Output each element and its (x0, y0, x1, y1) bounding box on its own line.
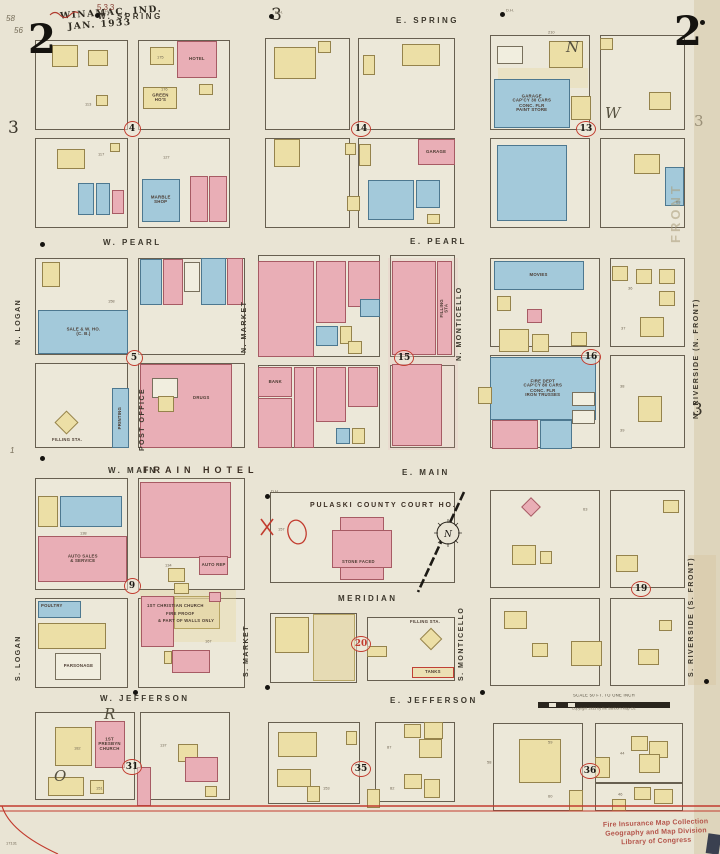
building (78, 183, 94, 215)
building (638, 649, 659, 665)
annotation-3: 3 (694, 114, 704, 129)
lot-number-d-h: D.H. (101, 10, 109, 14)
building (42, 262, 60, 287)
building (307, 786, 320, 802)
building (140, 364, 232, 448)
building-sale-w-ho: SALE & W. HO.(C. B.) (38, 310, 128, 354)
building (638, 396, 662, 422)
building (88, 50, 108, 66)
building (346, 731, 357, 745)
building-label: HOTEL (189, 57, 205, 62)
building (164, 651, 172, 664)
building (38, 623, 106, 649)
lot-number-151: 151 (96, 787, 103, 791)
building-auto-rep: AUTO REP (199, 556, 228, 575)
block-outline (610, 598, 685, 686)
hydrant-dot (40, 242, 45, 247)
building (96, 183, 110, 215)
lot-number-113: 113 (85, 103, 91, 107)
annotation-58: 58 (6, 14, 15, 23)
street-label-s-logan: S. LOGAN (15, 635, 22, 681)
building (57, 149, 85, 169)
building (316, 326, 338, 346)
building (532, 334, 549, 352)
building (612, 799, 626, 811)
building (163, 259, 183, 305)
lot-number-63: 63 (583, 508, 587, 512)
lot-number-44: 44 (620, 752, 624, 756)
building (316, 367, 346, 422)
building (360, 299, 380, 317)
hydrant-dot (480, 690, 485, 695)
building (404, 774, 422, 789)
street-label-s-monticello: S. MONTICELLO (458, 607, 465, 681)
lot-number-167: 167 (205, 640, 212, 644)
building (572, 410, 595, 424)
building-auto-sales: AUTO SALES& SERVICE (38, 536, 127, 582)
street-label-s-riverside-s-front: S. RIVERSIDE (S. FRONT) (688, 557, 695, 677)
lot-number-117: 117 (98, 153, 104, 157)
building-label: GARAGECAP'CY 30 CARSCONC. FLRPAINT STORE (513, 94, 552, 112)
building-label: PRINTING (118, 407, 123, 429)
building (190, 176, 208, 222)
building (639, 754, 660, 773)
building (205, 786, 217, 797)
building (654, 789, 673, 804)
building (294, 367, 314, 448)
building (174, 583, 189, 594)
lot-number-175: 175 (157, 56, 164, 60)
annotation-1st-christian-church: 1ST CHRISTIAN CHURCH (147, 604, 204, 608)
building (152, 378, 178, 398)
lot-number-37: 37 (621, 327, 625, 331)
lot-number-36: 36 (628, 287, 632, 291)
building (427, 214, 440, 224)
lot-number-60: 60 (548, 795, 552, 799)
street-label-w-jefferson: W. JEFFERSON (100, 694, 190, 703)
scale-label: SCALE 50 FT. TO ONE INCH (559, 694, 649, 698)
lot-number-157: 157 (278, 528, 285, 532)
building (185, 757, 218, 782)
building (258, 398, 292, 448)
building (402, 44, 440, 66)
lot-number-134: 134 (165, 564, 172, 568)
building (168, 568, 185, 582)
building-label: FILLINGSTA (440, 299, 449, 317)
building (600, 38, 613, 50)
building (499, 329, 529, 352)
building-label: GARAGE (426, 150, 446, 155)
building (367, 646, 387, 657)
building (392, 364, 442, 446)
ink-blotch (706, 833, 720, 854)
building (112, 190, 124, 214)
building (140, 259, 162, 305)
annotation-n: N (566, 38, 579, 56)
annotation-56: 56 (14, 26, 23, 35)
building (275, 617, 309, 653)
street-label-w-pearl: W. PEARL (103, 238, 162, 247)
building-movies: MOVIES (494, 261, 584, 290)
block-number-5: 5 (126, 350, 143, 366)
lot-number-182: 182 (74, 747, 81, 751)
building (201, 258, 226, 305)
building (497, 145, 567, 221)
lot-number-d-h: D.H. (271, 490, 279, 494)
building (348, 341, 362, 354)
building (199, 84, 213, 95)
block-number-31: 31 (122, 759, 142, 775)
building (60, 496, 122, 527)
building (636, 269, 652, 284)
building (209, 176, 227, 222)
building (478, 387, 492, 404)
building-label: BANK (268, 380, 281, 385)
building (368, 180, 414, 220)
building (258, 261, 314, 357)
annotation-filling-sta: FILLING STA. (52, 438, 82, 442)
building-printing: PRINTING (112, 388, 129, 448)
railroad-curve (2, 806, 58, 854)
building-bank: BANK (258, 367, 292, 397)
building (634, 787, 651, 800)
building (649, 92, 671, 110)
hydrant-dot (40, 456, 45, 461)
building (278, 732, 317, 757)
annotation-frain-hotel: FRAIN HOTEL (143, 465, 259, 475)
building (416, 180, 440, 208)
annotation-r: R (104, 705, 115, 723)
annotation-fire-proof: FIRE PROOF (166, 612, 194, 616)
building (209, 592, 221, 602)
annotation-stone-faced: STONE FACED (342, 560, 375, 564)
block-number-36: 36 (580, 763, 600, 779)
block-number-19: 19 (631, 581, 651, 597)
building (640, 317, 664, 337)
street-label-e-main: E. MAIN (402, 468, 450, 477)
street-label-s-market: S. MARKET (243, 625, 250, 677)
building-label: AUTO REP (202, 563, 226, 568)
block-number-13: 13 (576, 121, 596, 137)
building (424, 779, 440, 798)
building (352, 428, 365, 444)
street-label-n-logan: N. LOGAN (15, 299, 22, 345)
building-filling: FILLINGSTA (437, 261, 452, 355)
annotation-front: FRONT (668, 183, 683, 243)
lot-number-39: 39 (620, 429, 624, 433)
building (659, 620, 672, 631)
street-label-e-spring: E. SPRING (396, 16, 459, 25)
building (313, 614, 355, 681)
building (172, 650, 210, 673)
lot-number-138: 138 (80, 532, 87, 536)
lot-number-82: 82 (390, 787, 394, 791)
building-label: GREENHO'S (152, 93, 168, 102)
sanborn-map-sheet: HOTELGREENHO'SMARBLESHOPGARAGEGARAGECAP'… (0, 0, 720, 854)
building (569, 790, 583, 811)
building-label: SALE & W. HO.(C. B.) (66, 327, 100, 336)
block-number-35: 35 (351, 761, 371, 777)
block-outline (490, 490, 600, 588)
block-number-9: 9 (124, 578, 141, 594)
building (519, 739, 561, 783)
lot-number-58: 58 (487, 761, 491, 765)
hydrant-dot (269, 14, 274, 19)
scale-segment (538, 702, 548, 708)
hydrant-dot (133, 690, 138, 695)
building (345, 143, 356, 155)
building-label: FIRE DEPTCAP'CY 80 CARSCONC. FLRIRON TRU… (524, 379, 563, 397)
building (512, 545, 536, 565)
building (527, 309, 542, 323)
building-label: TANKS (425, 670, 441, 675)
scale-copyright: Copyright 1933 by the Sanborn Map Co. (564, 707, 643, 711)
lot-number-158: 158 (108, 300, 115, 304)
building (497, 46, 523, 64)
building (419, 739, 442, 758)
lot-number-87: 87 (387, 746, 391, 750)
annotation-1: 1 (10, 446, 14, 455)
building (274, 47, 316, 79)
building (140, 482, 231, 558)
block-number-15: 15 (394, 350, 414, 366)
block-number-4: 4 (124, 121, 141, 137)
building-garage: GARAGECAP'CY 30 CARSCONC. FLRPAINT STORE (494, 79, 570, 128)
building (571, 332, 587, 346)
building (367, 789, 380, 808)
hydrant-dot (265, 685, 270, 690)
building (659, 291, 675, 306)
block-number-20: 20 (351, 636, 371, 652)
scale-bar: SCALE 50 FT. TO ONE INCH Copyright 1933 … (538, 694, 670, 713)
hydrant-dot (704, 679, 709, 684)
building (631, 736, 648, 751)
lot-number-68: 68 (676, 201, 680, 205)
building (158, 396, 174, 412)
building (184, 262, 200, 292)
street-label-meridian: MERIDIAN (338, 594, 398, 603)
building (663, 500, 679, 513)
hydrant-dot (265, 494, 270, 499)
annotation-drugs: DRUGS (193, 396, 210, 400)
building-label: MARBLESHOP (151, 196, 171, 205)
building (571, 96, 591, 120)
building (392, 261, 436, 355)
building (227, 258, 243, 305)
building-label: AUTO SALES& SERVICE (68, 554, 98, 563)
annotation-w: W (605, 104, 620, 122)
street-label-e-jefferson: E. JEFFERSON (390, 696, 478, 705)
building (359, 144, 371, 166)
building (504, 611, 527, 629)
hydrant-dot (95, 13, 100, 18)
building (318, 41, 331, 53)
lot-number-176: 176 (161, 88, 168, 92)
annotation-poultry: POULTRY (41, 604, 63, 608)
building (316, 261, 346, 323)
annotation-part-of-walls-only: & PART OF WALLS ONLY (158, 619, 214, 623)
building-label: 1STPRESBYNCHURCH (99, 738, 121, 752)
lot-number-17131: 17131 (6, 842, 17, 846)
street-label-post-office: POST OFFICE (139, 388, 146, 451)
building (540, 420, 572, 449)
building (336, 428, 350, 444)
building (612, 266, 628, 281)
lot-number-210: 210 (548, 31, 555, 35)
building (497, 296, 511, 311)
library-of-congress-stamp: Fire Insurance Map Collection Geography … (592, 818, 720, 849)
building-tanks: TANKS (412, 667, 454, 678)
building-hotel: HOTEL (177, 41, 217, 78)
building (363, 55, 375, 75)
lot-number-127: 127 (163, 156, 170, 160)
building (38, 496, 58, 527)
street-label-n-market: N. MARKET (241, 301, 248, 353)
building (348, 367, 378, 407)
building (659, 269, 675, 284)
annotation-pulaski-county-court-ho: PULASKI COUNTY COURT HO. (310, 502, 457, 509)
street-label-e-pearl: E. PEARL (410, 237, 467, 246)
lot-number-153: 153 (323, 787, 330, 791)
street-label-n-monticello: N. MONTICELLO (456, 286, 463, 361)
building (634, 154, 660, 174)
annotation-o: O (54, 767, 66, 785)
lot-number-137: 137 (160, 744, 167, 748)
annotation-2: 2 (674, 12, 702, 52)
building (277, 769, 311, 787)
block-number-16: 16 (581, 349, 601, 365)
building (492, 420, 538, 449)
building-label: PARSONAGE (63, 664, 92, 669)
building (571, 641, 602, 666)
building (616, 555, 638, 572)
building (347, 196, 360, 211)
lot-number-59: 59 (548, 741, 552, 745)
lot-number-d-h: D.H. (275, 11, 283, 15)
building (110, 143, 120, 152)
building-marble: MARBLESHOP (142, 179, 180, 222)
building (274, 139, 300, 167)
hydrant-dot (500, 12, 505, 17)
building (137, 767, 151, 806)
building (424, 722, 443, 739)
scale-segment (548, 702, 558, 708)
building-garage: GARAGE (418, 139, 455, 165)
block-number-14: 14 (351, 121, 371, 137)
building (404, 724, 421, 738)
lot-number-38: 38 (620, 385, 624, 389)
building-green: GREENHO'S (143, 87, 177, 109)
building (540, 551, 552, 564)
scale-strip (538, 702, 670, 706)
lot-number-d-h: D.H. (506, 9, 514, 13)
street-label-n-riverside-n-front: N. RIVERSIDE (N. FRONT) (693, 298, 700, 419)
hydrant-dot (700, 20, 705, 25)
building (96, 95, 108, 106)
annotation-2: 2 (28, 20, 56, 60)
building-1st: 1STPRESBYNCHURCH (95, 721, 125, 768)
lot-number-46: 46 (618, 793, 622, 797)
building (532, 643, 548, 657)
annotation-3: 3 (8, 120, 19, 137)
annotation-filling-sta: FILLING STA. (410, 620, 440, 624)
building-parsonage: PARSONAGE (55, 653, 101, 680)
building (572, 392, 595, 406)
building (52, 45, 78, 67)
building-label: MOVIES (530, 273, 548, 278)
